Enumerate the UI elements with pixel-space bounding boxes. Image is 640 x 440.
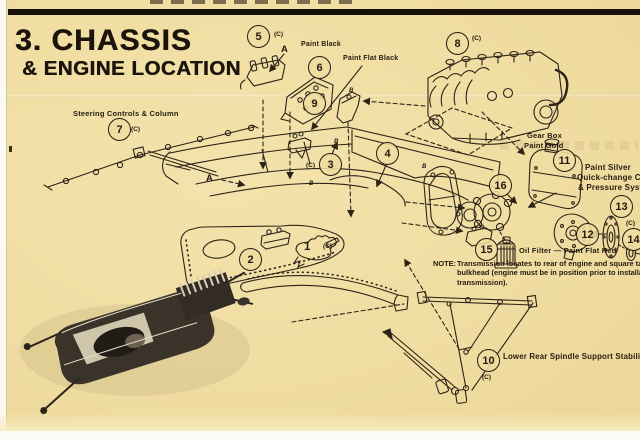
label-oil-filter: Oil Filter — Paint Flat Red [519, 246, 617, 255]
c-suffix-3: (C) [306, 162, 315, 169]
chassis-photo [16, 265, 265, 416]
callout-2: 2 [239, 248, 262, 271]
page-bottom-edge [0, 431, 640, 440]
top-rule-bar [8, 9, 640, 15]
callout-8: 8 [446, 32, 469, 55]
transmission-cluster-drawing [402, 191, 516, 246]
paper-speck [9, 146, 12, 152]
marker-b-2: B [334, 139, 338, 145]
label-stabilizer: Lower Rear Spindle Support Stabilizer [503, 352, 640, 361]
label-paint-black: Paint Black [301, 41, 341, 48]
c-suffix-5: (C) [274, 31, 283, 38]
step-title-line2: & ENGINE LOCATION [22, 57, 241, 81]
note-block: NOTE: Transmission locates to rear of en… [433, 259, 640, 287]
side-sill-drawing [241, 272, 408, 322]
page-left-edge [0, 0, 7, 440]
callout-11: 11 [553, 149, 576, 172]
marker-b-3: B [422, 164, 426, 170]
callout-14: 14 [622, 228, 640, 251]
marker-a-top: A [281, 44, 288, 55]
callout-13: 13 [610, 195, 633, 218]
callout-15: 15 [475, 238, 498, 261]
c-suffix-7: (C) [131, 126, 140, 133]
label-pressure-system: & Pressure System [578, 183, 640, 192]
marker-a-chassis: A [206, 173, 213, 184]
marker-b-4: B [309, 181, 313, 187]
label-steering: Steering Controls & Column [73, 109, 179, 118]
label-paint-gold: Paint Gold [524, 141, 564, 150]
step-title-line1: 3. CHASSIS [15, 24, 192, 58]
page-bottom-band [0, 412, 640, 432]
callout-6: 6 [308, 56, 331, 79]
callout-3: 3 [319, 153, 342, 176]
callout-5: 5 [247, 25, 270, 48]
callout-1: 1 [304, 241, 310, 253]
c-suffix-10: (C) [482, 374, 491, 381]
label-quick-change-cover: Quick-change Cover [577, 173, 640, 182]
callout-10: 10 [477, 349, 500, 372]
callout-4: 4 [376, 142, 399, 165]
c-suffix-14: (C) [626, 220, 635, 227]
label-gear-box: Gear Box [527, 131, 562, 140]
label-paint-silver: Paint Silver [585, 163, 631, 172]
callout-7: 7 [108, 118, 131, 141]
marker-b-1: B [349, 88, 353, 94]
callout-16: 16 [489, 174, 512, 197]
note-prefix: NOTE: [433, 259, 456, 268]
c-suffix-1: (C) [323, 243, 332, 250]
c-suffix-8: (C) [472, 35, 481, 42]
note-body: Transmission locates to rear of engine a… [457, 259, 640, 287]
callout-9: 9 [303, 92, 326, 115]
instruction-sheet-page: 3. CHASSIS & ENGINE LOCATION [0, 0, 640, 440]
chassis-frame-drawing [163, 127, 500, 235]
top-edge-print-fragment [150, 0, 355, 4]
callout-12: 12 [576, 223, 599, 246]
label-paint-flat-black: Paint Flat Black [343, 55, 398, 62]
